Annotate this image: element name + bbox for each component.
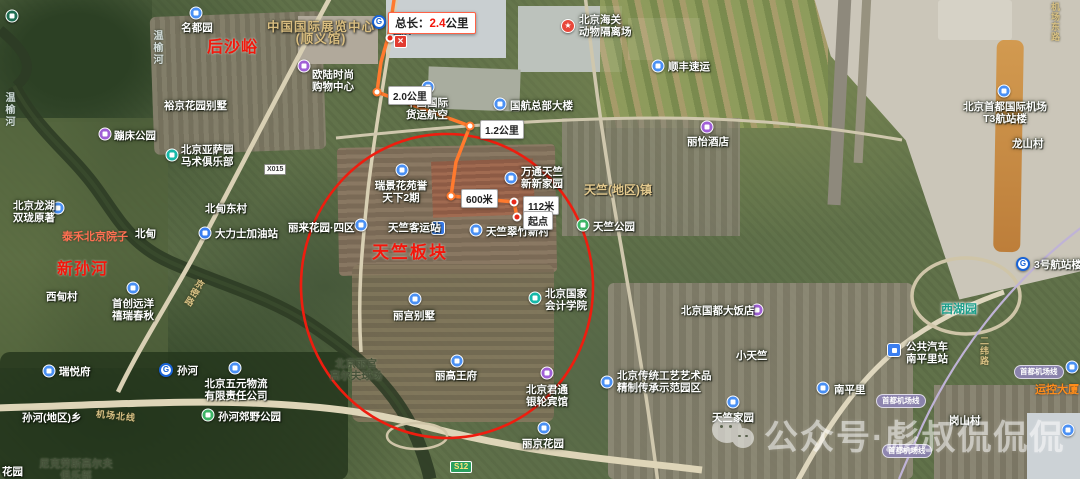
star-marker[interactable]: ★: [561, 19, 575, 33]
place-label[interactable]: 北京首都国际机场T3航站楼: [963, 101, 1047, 125]
metro-marker[interactable]: G: [159, 363, 173, 377]
route-waypoint-dot: [447, 192, 456, 201]
place-label[interactable]: 国航总部大楼: [510, 100, 573, 112]
airport-express-line-badge: 首都机场线: [1014, 365, 1064, 379]
place-label: 天竺板块: [372, 247, 448, 259]
route-waypoint-dot: [466, 122, 475, 131]
measure-close-button[interactable]: ×: [394, 35, 407, 48]
place-label[interactable]: 顺丰速运: [668, 61, 710, 73]
watermark: 公众号·彪叔侃侃侃: [712, 410, 1065, 459]
road-name-label: 二纬路: [978, 336, 991, 366]
poi-pin-marker[interactable]: [202, 409, 215, 422]
road-number-badge: S12: [450, 461, 472, 473]
route-distance-label: 600米: [461, 189, 498, 208]
place-label: 小天竺: [736, 350, 768, 362]
poi-pin-marker[interactable]: [1066, 361, 1079, 374]
route-waypoint-dot: [513, 213, 522, 222]
poi-pin-marker[interactable]: [505, 172, 518, 185]
poi-pin-marker[interactable]: [451, 355, 464, 368]
watermark-text: 公众号·彪叔侃侃侃: [764, 410, 1065, 459]
bus-marker[interactable]: [887, 343, 901, 357]
place-label: 西湖园: [941, 303, 977, 315]
poi-pin-marker[interactable]: [396, 164, 409, 177]
place-label: 龙山村: [1012, 138, 1044, 150]
place-label[interactable]: 北京国家会计学院: [545, 288, 587, 312]
place-label: 裕京花园别墅: [164, 100, 227, 112]
wechat-icon: [712, 412, 760, 458]
route-start-label: 起点: [523, 211, 553, 230]
road-name-label: 机场北线: [95, 407, 136, 424]
place-label: 新孙河: [57, 264, 108, 276]
place-label: 温榆河: [2, 92, 14, 128]
gas-marker[interactable]: [199, 227, 212, 240]
place-label[interactable]: 丽怡酒店: [687, 136, 729, 148]
route-distance-label: 2.0公里: [388, 86, 432, 105]
place-label: 西甸村: [46, 291, 78, 303]
poi-pin-marker[interactable]: [99, 128, 112, 141]
place-label: 北甸: [135, 228, 156, 240]
poi-pin-marker[interactable]: [470, 224, 483, 237]
poi-pin-marker[interactable]: [229, 362, 242, 375]
measure-total-value: 2.4: [430, 18, 446, 30]
poi-pin-marker[interactable]: [494, 98, 507, 111]
place-label: 泰禾北京院子: [62, 231, 128, 243]
poi-pin-marker[interactable]: [43, 365, 56, 378]
place-label: 温榆河: [150, 30, 162, 66]
place-label[interactable]: 丽高王府: [435, 370, 477, 382]
place-label[interactable]: 欧陆时尚购物中心: [312, 69, 354, 93]
metro-marker[interactable]: G: [1016, 257, 1030, 271]
place-label: 后沙峪: [207, 42, 258, 54]
poi-pin-marker[interactable]: [541, 367, 554, 380]
place-label: 尼克劳斯高尔夫俱乐部: [39, 458, 113, 479]
airport-express-line-badge: 首都机场线: [876, 394, 926, 408]
place-label[interactable]: 3号航站楼: [1034, 259, 1080, 271]
place-label: 孙河(地区)乡: [22, 412, 82, 424]
place-label[interactable]: 运控大厦: [1035, 384, 1079, 396]
poi-pin-marker[interactable]: [727, 396, 740, 409]
poi-pin-marker[interactable]: [701, 121, 714, 134]
poi-pin-marker[interactable]: [6, 10, 19, 23]
place-label: 天竺(地区)镇: [584, 184, 652, 196]
place-label[interactable]: 万通天竺新新家园: [521, 166, 563, 190]
place-label[interactable]: 瑞景花苑誉天下2期: [375, 180, 428, 204]
place-label[interactable]: 瑞悦府: [59, 366, 91, 378]
poi-pin-marker[interactable]: [601, 376, 614, 389]
place-label[interactable]: 北京海关动物隔离场: [579, 14, 632, 38]
poi-pin-marker[interactable]: [577, 219, 590, 232]
poi-pin-marker[interactable]: [817, 382, 830, 395]
place-label[interactable]: 天竺公园: [593, 221, 635, 233]
place-label: 北甸东村: [205, 203, 247, 215]
place-label[interactable]: 公共汽车南平里站: [906, 341, 948, 365]
road-name-label: 京密路: [181, 277, 207, 309]
place-label[interactable]: 丽宫别墅: [393, 310, 435, 322]
place-label[interactable]: 北京传统工艺艺术品精制传承示范园区: [617, 370, 712, 394]
place-label[interactable]: 南平里: [834, 384, 866, 396]
place-label[interactable]: 北京君通银轮宾馆: [526, 384, 568, 408]
place-label[interactable]: 蹦床公园: [114, 130, 156, 142]
poi-pin-marker[interactable]: [166, 149, 179, 162]
place-label[interactable]: 丽京花园: [522, 438, 564, 450]
place-label: 中国国际展览中心(顺义馆): [267, 21, 375, 45]
place-label[interactable]: 北京五元物流有限责任公司: [205, 378, 268, 402]
measure-total-box: 总长：2.4公里: [388, 12, 476, 34]
measure-total-unit: 公里: [446, 18, 469, 30]
road-name-label: 机场东路: [1049, 2, 1062, 42]
route-waypoint-dot: [510, 198, 519, 207]
place-label[interactable]: 大力士加油站: [215, 228, 278, 240]
poi-pin-marker[interactable]: [538, 422, 551, 435]
poi-pin-marker[interactable]: [298, 60, 311, 73]
route-distance-label: 1.2公里: [480, 120, 524, 139]
measure-total-prefix: 总长：: [395, 18, 430, 30]
poi-pin-marker[interactable]: [529, 292, 542, 305]
labels-layer: 名都园欧陆时尚购物中心裕京花园别墅G国展★北京海关动物隔离场顺丰速运中国国际展览…: [0, 0, 1080, 479]
place-label: 北京丽宫高尔夫球场: [330, 358, 383, 382]
map-canvas[interactable]: 名都园欧陆时尚购物中心裕京花园别墅G国展★北京海关动物隔离场顺丰速运中国国际展览…: [0, 0, 1080, 479]
place-label[interactable]: 名都园: [181, 22, 213, 34]
place-label[interactable]: 北京龙湖双珑原著: [13, 200, 55, 224]
place-label[interactable]: 天竺客运站: [388, 222, 441, 234]
route-waypoint-dot: [373, 88, 382, 97]
poi-pin-marker[interactable]: [409, 293, 422, 306]
poi-pin-marker[interactable]: [998, 85, 1011, 98]
poi-pin-marker[interactable]: [652, 60, 665, 73]
place-label[interactable]: 孙河: [177, 365, 198, 377]
place-label[interactable]: 北京国都大饭店: [681, 305, 755, 317]
road-number-badge: X015: [264, 164, 286, 175]
poi-pin-marker[interactable]: [355, 219, 368, 232]
place-label[interactable]: 孙河郊野公园: [218, 411, 281, 423]
poi-pin-marker[interactable]: [190, 7, 203, 20]
place-label: 花园: [2, 466, 23, 478]
place-label[interactable]: 丽来花园·四区: [288, 222, 355, 234]
poi-pin-marker[interactable]: [127, 282, 140, 295]
place-label[interactable]: 北京亚萨园马术俱乐部: [181, 144, 234, 168]
place-label[interactable]: 首创远洋禧瑞春秋: [112, 298, 154, 322]
